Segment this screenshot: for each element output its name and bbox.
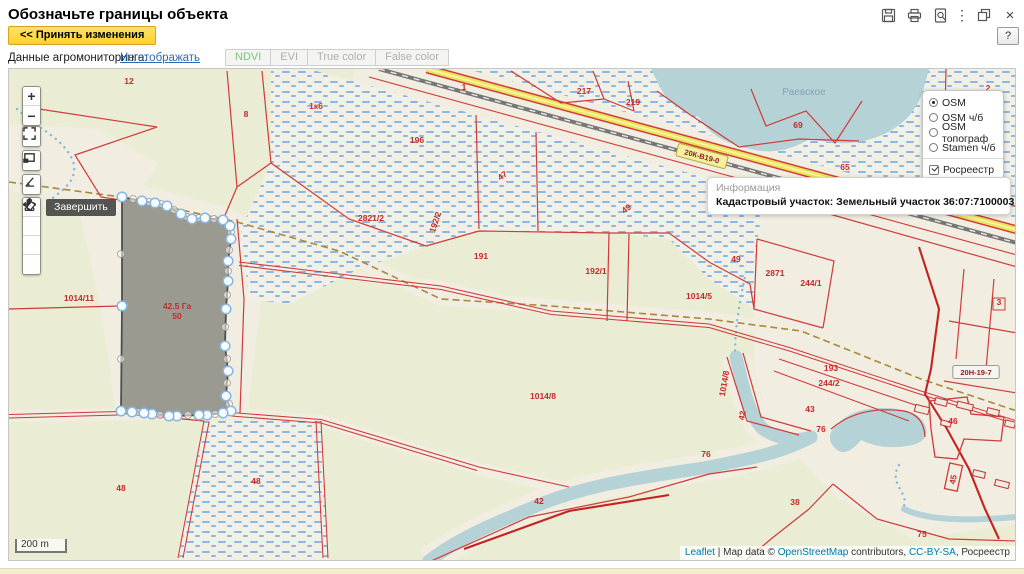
midpoint-marker[interactable] [225,268,232,275]
parcel-label: 42 [534,496,544,506]
tab-evi[interactable]: EVI [270,49,308,66]
agromonitoring-toggle-link[interactable]: Не отображать [120,52,200,64]
parcel-label: 192/1 [585,266,607,276]
attribution-text: , Росреестр [956,547,1010,558]
move-button[interactable] [23,217,40,236]
vertex-marker[interactable] [223,276,233,286]
vertex-marker[interactable] [117,301,127,311]
tab-true-color[interactable]: True color [307,49,376,66]
vertex-marker[interactable] [117,192,127,202]
info-box: Информация Кадастровый участок: Земельны… [707,177,1011,215]
parcel-label: 1 [462,82,467,92]
openstreetmap-link[interactable]: OpenStreetMap [778,547,849,558]
radio-icon[interactable] [929,143,938,152]
lake-label: Раевское [782,87,826,98]
print-icon[interactable] [906,7,922,23]
midpoint-marker[interactable] [226,247,233,254]
attribution-text: contributors, [848,547,909,558]
layers-panel: OSM OSM ч/б OSM топограф Stamen ч/б Роср… [922,90,1004,183]
vertex-marker[interactable] [194,410,204,420]
overlay-label: Росреестр [943,164,994,176]
parcel-label: 46 [948,416,958,426]
fullscreen-button[interactable] [23,127,40,146]
zoom-out-button[interactable]: − [23,106,40,125]
tab-false-color[interactable]: False color [375,49,449,66]
measure-button[interactable] [23,175,40,194]
vertex-marker[interactable] [223,366,233,376]
parcel-label: 45 [947,474,959,485]
midpoint-marker[interactable] [211,216,218,223]
layer-option-osm-topo[interactable]: OSM топограф [929,126,997,139]
parcel-label: 75 [917,529,927,539]
parcel-label: 1к6 [309,101,323,111]
parcel-label: 3 [997,297,1002,307]
cc-by-sa-link[interactable]: CC-BY-SA [909,547,956,558]
vertex-marker[interactable] [176,209,186,219]
midpoint-marker[interactable] [130,196,137,203]
parcel-label: 65 [840,162,850,172]
parcel-label: 76 [816,424,826,434]
midpoint-marker[interactable] [224,292,231,299]
parcel-label: 244/1 [800,278,822,288]
parcel-label: 2871 [766,268,785,278]
scale-bar: 200 m [15,539,67,553]
midpoint-marker[interactable] [118,251,125,258]
cadastral-parcel-text: Кадастровый участок: Земельный участок 3… [716,196,1002,208]
erase-button[interactable] [23,255,40,274]
save-icon[interactable] [880,7,896,23]
parcel-label: 1014/5 [686,291,712,301]
rectangle-control [22,150,41,171]
leaflet-link[interactable]: Leaflet [685,547,715,558]
index-tabs: NDVI EVI True color False color [226,49,449,66]
layer-label: OSM [942,97,966,109]
vertex-marker[interactable] [218,408,228,418]
vertex-marker[interactable] [221,304,231,314]
parcel-label: 12 [124,76,134,86]
radio-icon[interactable] [929,128,938,137]
page-title: Обозначьте границы объекта [8,6,228,23]
vertex-marker[interactable] [226,234,236,244]
parcel-label: 49 [731,254,741,264]
restore-window-icon[interactable] [976,7,992,23]
svg-text:20Н-19-7: 20Н-19-7 [960,368,991,377]
midpoint-marker[interactable] [224,356,231,363]
vertex-marker[interactable] [223,256,233,266]
layers-separator [923,158,1003,159]
parcel-label: 42 [736,410,748,421]
parcel-label: 217 [577,86,591,96]
window-controls: ⋮ × [880,7,1018,23]
parcel-label: 48 [251,476,261,486]
midpoint-marker[interactable] [224,380,231,387]
area-sublabel: 50 [172,311,182,321]
layer-label: Stamen ч/б [942,142,996,154]
checkbox-icon[interactable] [929,165,939,175]
edit-toolbar [22,197,41,275]
midpoint-marker[interactable] [212,411,219,418]
vertex-marker[interactable] [116,406,126,416]
map-canvas[interactable]: 1281961к614749217219269652821/2192/21911… [8,68,1016,561]
midpoint-marker[interactable] [185,412,192,419]
help-button[interactable]: ? [997,27,1019,45]
vertex-marker[interactable] [137,196,147,206]
info-box-header: Информация [716,182,1002,194]
map-attribution: Leaflet | Map data © OpenStreetMap contr… [680,546,1015,560]
layer-option-stamen-bw[interactable]: Stamen ч/б [929,141,997,154]
vertex-marker[interactable] [127,407,137,417]
preview-icon[interactable] [932,7,948,23]
finish-tooltip: Завершить [46,199,116,216]
road-shield: 20Н-19-7 [953,366,999,379]
map-render: 1281961к614749217219269652821/2192/21911… [9,69,1016,561]
parcel-label: 1014/11 [64,293,95,303]
vertex-marker[interactable] [221,391,231,401]
vertex-marker[interactable] [220,341,230,351]
midpoint-marker[interactable] [222,324,229,331]
layer-option-osm[interactable]: OSM [929,96,997,109]
vertex-marker[interactable] [164,411,174,421]
vertex-marker[interactable] [187,214,197,224]
parcel-label: 1014/8 [717,370,731,398]
parcel-label: 69 [793,120,803,130]
radio-icon[interactable] [929,113,938,122]
midpoint-marker[interactable] [157,412,164,419]
parcel-label: 244/2 [818,378,840,388]
parcel-label: 196 [410,135,424,145]
zoom-control: + − [22,86,41,126]
parcel-label: 219 [626,97,640,107]
tab-ndvi[interactable]: NDVI [225,49,271,66]
measure-control [22,174,41,195]
parcel-label: 43 [805,404,815,414]
more-icon[interactable]: ⋮ [958,7,966,23]
vertex-marker[interactable] [225,221,235,231]
vertex-marker[interactable] [162,201,172,211]
midpoint-marker[interactable] [118,356,125,363]
parcel-label: 38 [790,497,800,507]
vertex-marker[interactable] [150,198,160,208]
overlay-option-rosreestr[interactable]: Росреестр [929,163,997,176]
parcel-label: 191 [474,251,488,261]
accept-changes-button[interactable]: << Принять изменения [8,26,156,45]
parcel-label: 193 [824,363,838,373]
parcel-label: 8 [244,109,249,119]
cut-button[interactable] [23,236,40,255]
parcel-label: 48 [116,483,126,493]
bottom-strip [0,568,1024,574]
area-label: 42.5 Га [163,301,192,311]
radio-icon[interactable] [929,98,938,107]
parcel-label: 76 [701,449,711,459]
parcel-label: 2821/2 [358,213,384,223]
fullscreen-control [22,126,41,147]
close-icon[interactable]: × [1002,7,1018,23]
zoom-in-button[interactable]: + [23,87,40,106]
vertex-marker[interactable] [200,213,210,223]
parcel-label: 1014/8 [530,391,556,401]
vertex-marker[interactable] [139,408,149,418]
attribution-text: | Map data © [715,547,778,558]
draw-rectangle-button[interactable] [23,151,40,170]
